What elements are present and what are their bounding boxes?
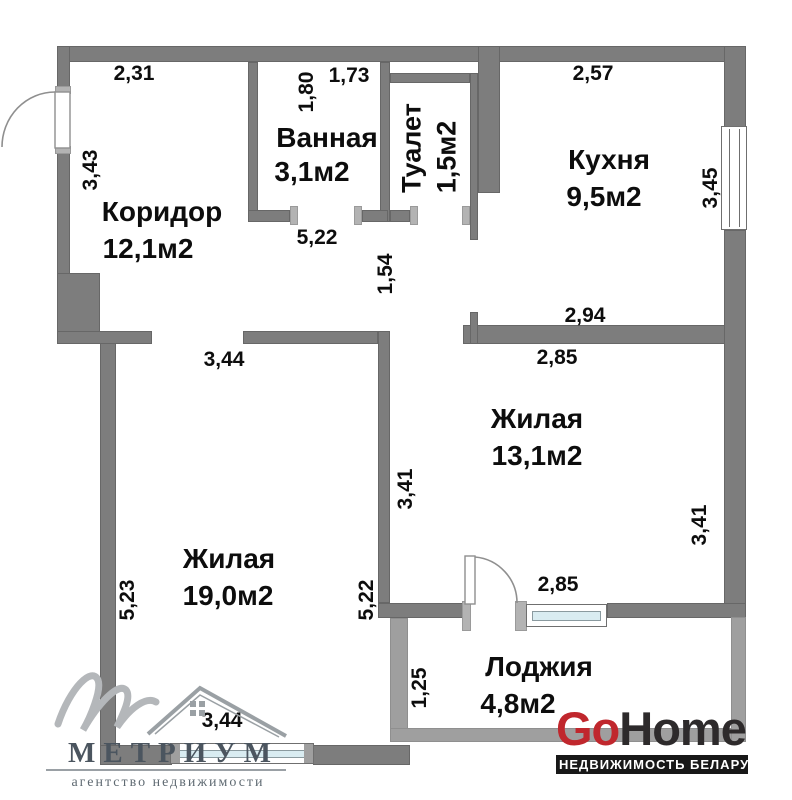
dim-room13-width-top: 2,85 [537,346,578,370]
room-kitchen-name: Кухня [568,144,650,176]
wall-mid-divider-b [243,331,378,344]
metrium-divider [46,769,286,771]
wall-right-lower [724,230,746,617]
dim-loggia-height-left: 1,25 [408,668,432,709]
wall-bath-bottom-b [362,210,388,222]
gohome-go: Go [556,702,619,755]
metrium-tagline: агентство недвижимости [63,775,273,791]
room-living13-area: 13,1м2 [492,440,583,472]
dim-kitchen-width-bottom: 2,94 [565,304,606,328]
entrance-door-leaf [55,92,70,148]
room-living13-name: Жилая [491,403,583,435]
balcony-door [455,548,527,610]
room-corridor-name: Коридор [102,196,223,228]
wall-wc-right-lower [470,312,478,344]
wc-door-jamb-left [410,206,418,225]
dim-bath-width-top: 1,73 [329,64,370,88]
dim-room19-height-right: 5,22 [355,580,379,621]
dim-balcony-door-width: 2,85 [538,573,579,597]
entrance-door [0,85,80,155]
dim-hall-width: 5,22 [297,226,338,250]
balcony-window [526,604,607,627]
dim-hall-passage-height: 1,54 [374,254,398,295]
room-living19-area: 19,0м2 [183,580,274,612]
wall-left-upper-b [57,148,70,278]
room-kitchen-area: 9,5м2 [566,181,641,213]
metrium-logo-text: МЕТРИУМ [68,737,279,770]
room-wc-name: Туалет [397,103,428,193]
dim-room13-height-left: 3,41 [394,469,418,510]
wc-door-jamb-right [462,206,470,225]
metrium-house-icon [140,680,300,745]
balcony-door-arc [475,557,517,603]
room-bath-name: Ванная [276,122,378,154]
wall-bath-left [248,62,258,222]
wall-wc-bottom-a [390,210,410,222]
dim-room13-height-right: 3,41 [688,505,712,546]
wall-kitchen-shaft-block [478,46,500,193]
gohome-logo: GoHome НЕДВИЖИМОСТЬ БЕЛАРУСИ [556,704,750,774]
dim-bath-height-left: 1,80 [295,72,319,113]
gohome-logo-text: GoHome [556,704,750,754]
kitchen-window-frame [729,129,740,227]
wall-room13-bottom-b [607,603,746,618]
room-loggia-name: Лоджия [485,651,593,683]
room-corridor-area: 12,1м2 [103,233,194,265]
wall-right-upper [724,46,746,128]
room-bath-area: 3,1м2 [274,156,349,188]
wall-bath-wc-divider [380,62,390,222]
wall-room13-bottom-a [378,603,466,618]
bath-door-jamb-left [290,206,298,225]
room-loggia-area: 4,8м2 [480,688,555,720]
dim-kitchen-height-right: 3,45 [699,168,723,209]
dim-corridor-height-left: 3,43 [79,150,103,191]
wall-bottom-seg-b [313,745,410,765]
kitchen-window [721,126,747,230]
wall-bath-bottom-a [248,210,290,222]
room-living19-name: Жилая [183,543,275,575]
room19-window-cap-right [304,744,313,763]
dim-room19-width-top: 3,44 [204,348,245,372]
gohome-home: Home [619,702,746,755]
entrance-door-arc [2,92,55,147]
bath-door-jamb-right [354,206,362,225]
wall-wc-right-upper [470,73,478,240]
dim-kitchen-width-top: 2,57 [573,62,614,86]
wall-loggia-left [390,618,408,742]
gohome-tagline: НЕДВИЖИМОСТЬ БЕЛАРУСИ [556,755,748,774]
floor-plan: Коридор 12,1м2 Ванная 3,1м2 Туалет 1,5м2… [0,0,792,800]
dim-room19-height-left: 5,23 [116,580,140,621]
room-wc-area: 1,5м2 [432,121,463,194]
wall-wc-niche [390,73,470,83]
wall-mid-divider-a [57,331,152,344]
wall-central-vertical [378,331,390,603]
balcony-door-leaf [465,556,475,604]
wall-top-exterior [57,46,746,62]
dim-corridor-width-top: 2,31 [114,62,155,86]
balcony-window-glass [532,611,601,621]
